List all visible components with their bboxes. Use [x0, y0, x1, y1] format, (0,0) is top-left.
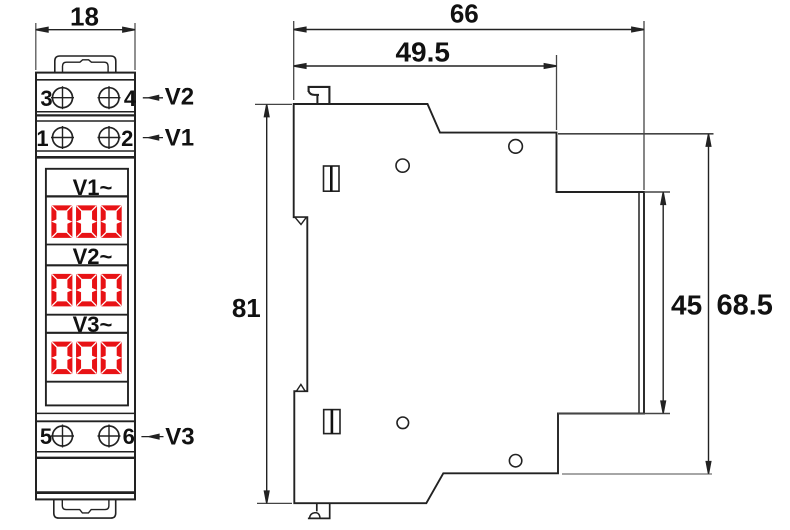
- svg-text:3: 3: [40, 86, 52, 111]
- svg-text:66: 66: [450, 0, 479, 29]
- svg-text:2: 2: [121, 126, 133, 151]
- svg-text:1: 1: [36, 126, 48, 151]
- svg-text:V1: V1: [165, 125, 194, 152]
- svg-text:81: 81: [232, 293, 261, 323]
- svg-text:6: 6: [123, 424, 135, 449]
- svg-text:68.5: 68.5: [716, 290, 772, 322]
- svg-text:V2: V2: [165, 84, 194, 111]
- svg-text:45: 45: [671, 290, 702, 321]
- svg-text:5: 5: [40, 424, 52, 449]
- svg-text:4: 4: [124, 86, 137, 111]
- svg-text:18: 18: [70, 1, 99, 31]
- svg-text:V3: V3: [165, 424, 194, 451]
- svg-text:49.5: 49.5: [395, 37, 450, 68]
